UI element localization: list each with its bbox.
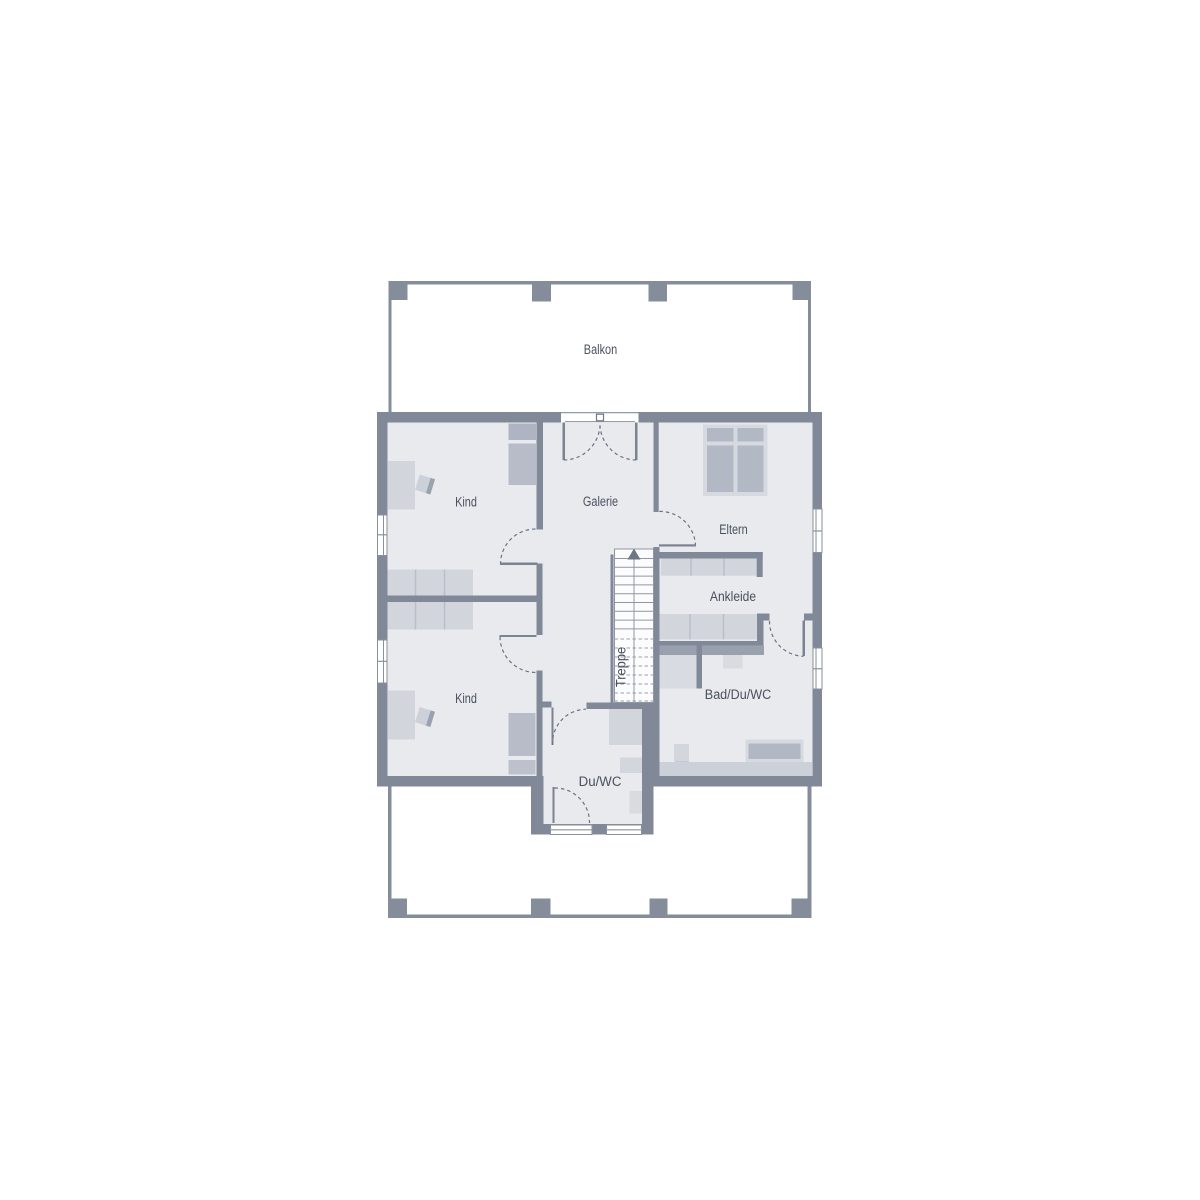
svg-text:Balkon: Balkon [584,342,617,358]
svg-text:Treppe: Treppe [613,647,629,687]
svg-text:Eltern: Eltern [719,522,748,538]
svg-text:Galerie: Galerie [583,494,618,510]
svg-text:Kind: Kind [455,691,477,707]
svg-text:Ankleide: Ankleide [710,588,756,604]
svg-text:Du/WC: Du/WC [579,774,622,789]
svg-text:Bad/Du/WC: Bad/Du/WC [705,686,772,702]
svg-text:Kind: Kind [455,494,477,510]
